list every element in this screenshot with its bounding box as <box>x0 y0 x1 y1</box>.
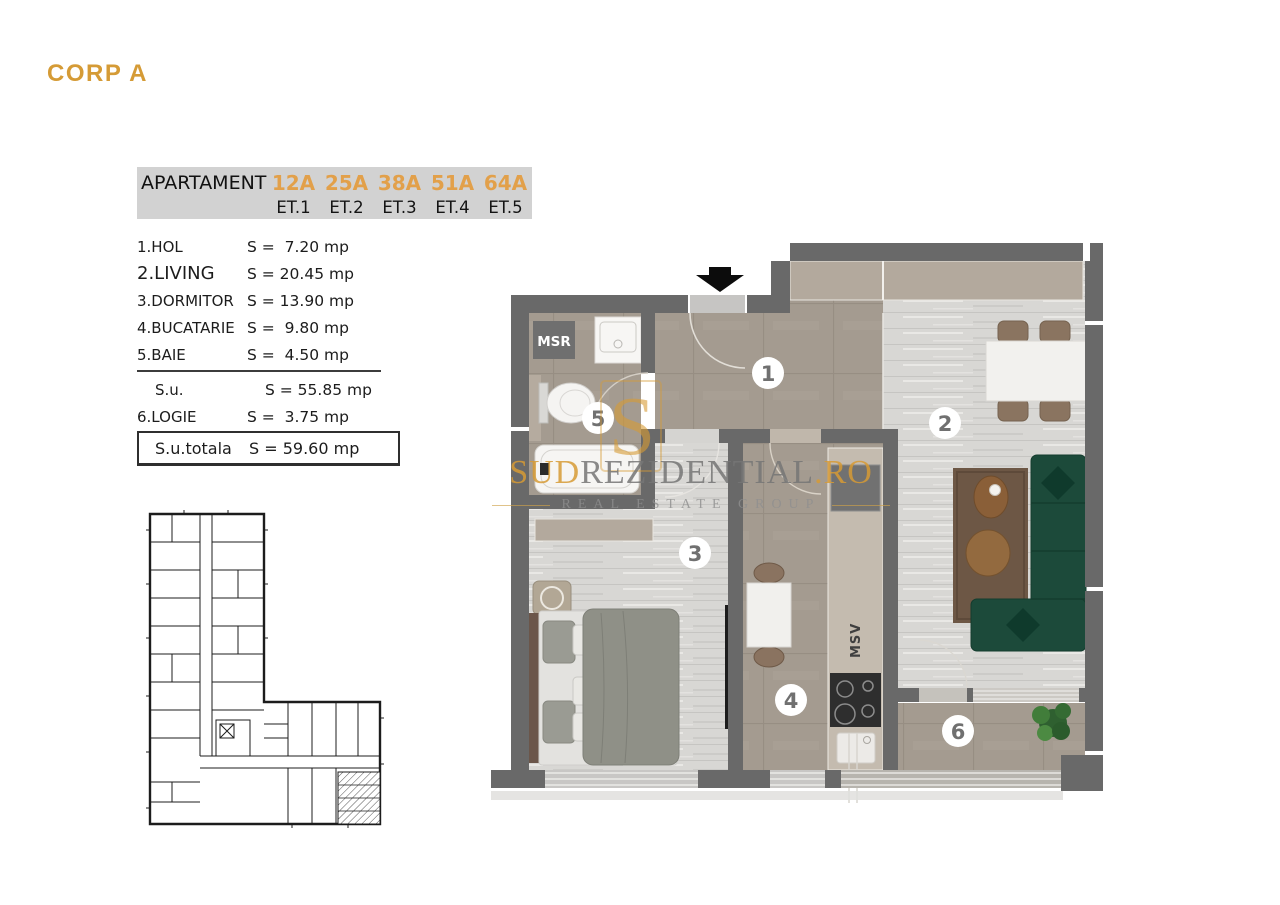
key-plan-drawing <box>146 510 384 828</box>
room-number-4: 4 <box>784 689 799 713</box>
total-name: S.u.totala <box>155 439 249 458</box>
room-name: 4.BUCATARIE <box>137 319 247 337</box>
msv-label: MSV <box>849 623 864 658</box>
apartment-table-label: APARTAMENT <box>137 172 267 194</box>
coffee-table <box>974 476 1008 518</box>
floor-et3: ET.3 <box>373 198 426 217</box>
summary-name: 6.LOGIE <box>137 408 247 426</box>
coffee-table <box>966 530 1010 576</box>
unit-51a: 51A <box>426 171 479 195</box>
floor-et5: ET.5 <box>479 198 532 217</box>
room-name: 3.DORMITOR <box>137 292 247 310</box>
summary-area: S = 55.85 mp <box>265 381 372 399</box>
floor-plan: MSR MSV 1 2 3 4 5 6 <box>483 233 1115 810</box>
unit-38a: 38A <box>373 171 426 195</box>
floorplan-sheet: CORP A APARTAMENT 12A 25A 38A 51A 64A ET… <box>0 0 1280 905</box>
room-row-baie: 5.BAIE S = 4.50 mp <box>137 341 387 368</box>
floor-et4: ET.4 <box>426 198 479 217</box>
room-number-5: 5 <box>591 407 606 431</box>
corp-title: CORP A <box>47 60 148 88</box>
wardrobe-band <box>790 261 1083 300</box>
msr-label: MSR <box>537 334 571 350</box>
total-area: S = 59.60 mp <box>249 439 359 458</box>
room-list: 1.HOL S = 7.20 mp 2.LIVING S = 20.45 mp … <box>137 233 387 368</box>
unit-64a: 64A <box>479 171 532 195</box>
floor-et1: ET.1 <box>267 198 320 217</box>
bathtub <box>535 445 639 493</box>
unit-25a: 25A <box>320 171 373 195</box>
room-number-6: 6 <box>951 720 966 744</box>
cooktop <box>830 673 881 727</box>
room-name: 2.LIVING <box>137 263 247 284</box>
room-number-3: 3 <box>688 542 703 566</box>
room-row-bucatarie: 4.BUCATARIE S = 9.80 mp <box>137 314 387 341</box>
room-number-1: 1 <box>761 362 776 386</box>
summary-row-su: S.u. S = 55.85 mp <box>137 376 387 404</box>
room-area: S = 9.80 mp <box>247 319 349 337</box>
room-area: S = 7.20 mp <box>247 238 349 256</box>
entrance-arrow-icon <box>696 267 744 292</box>
room-name: 1.HOL <box>137 238 247 256</box>
summary-name: S.u. <box>137 381 265 399</box>
summary-list: S.u. S = 55.85 mp 6.LOGIE S = 3.75 mp <box>137 376 387 431</box>
apartment-table-units-row: APARTAMENT 12A 25A 38A 51A 64A <box>137 167 532 197</box>
room-row-dormitor: 3.DORMITOR S = 13.90 mp <box>137 287 387 314</box>
summary-area: S = 3.75 mp <box>247 408 349 426</box>
key-plan <box>142 506 390 836</box>
room-name: 5.BAIE <box>137 346 247 364</box>
floor-et2: ET.2 <box>320 198 373 217</box>
fridge <box>831 465 880 511</box>
room-area: S = 20.45 mp <box>247 265 354 283</box>
room-number-2: 2 <box>938 412 953 436</box>
apartment-table-floors-row: ET.1 ET.2 ET.3 ET.4 ET.5 <box>137 197 532 218</box>
list-divider <box>137 370 381 372</box>
room-area: S = 4.50 mp <box>247 346 349 364</box>
room-row-living: 2.LIVING S = 20.45 mp <box>137 260 387 287</box>
room-area: S = 13.90 mp <box>247 292 354 310</box>
total-area-box: S.u.totala S = 59.60 mp <box>137 431 400 466</box>
unit-12a: 12A <box>267 171 320 195</box>
apartment-table: APARTAMENT 12A 25A 38A 51A 64A ET.1 ET.2… <box>137 167 532 219</box>
room-row-hol: 1.HOL S = 7.20 mp <box>137 233 387 260</box>
summary-row-logie: 6.LOGIE S = 3.75 mp <box>137 404 387 432</box>
